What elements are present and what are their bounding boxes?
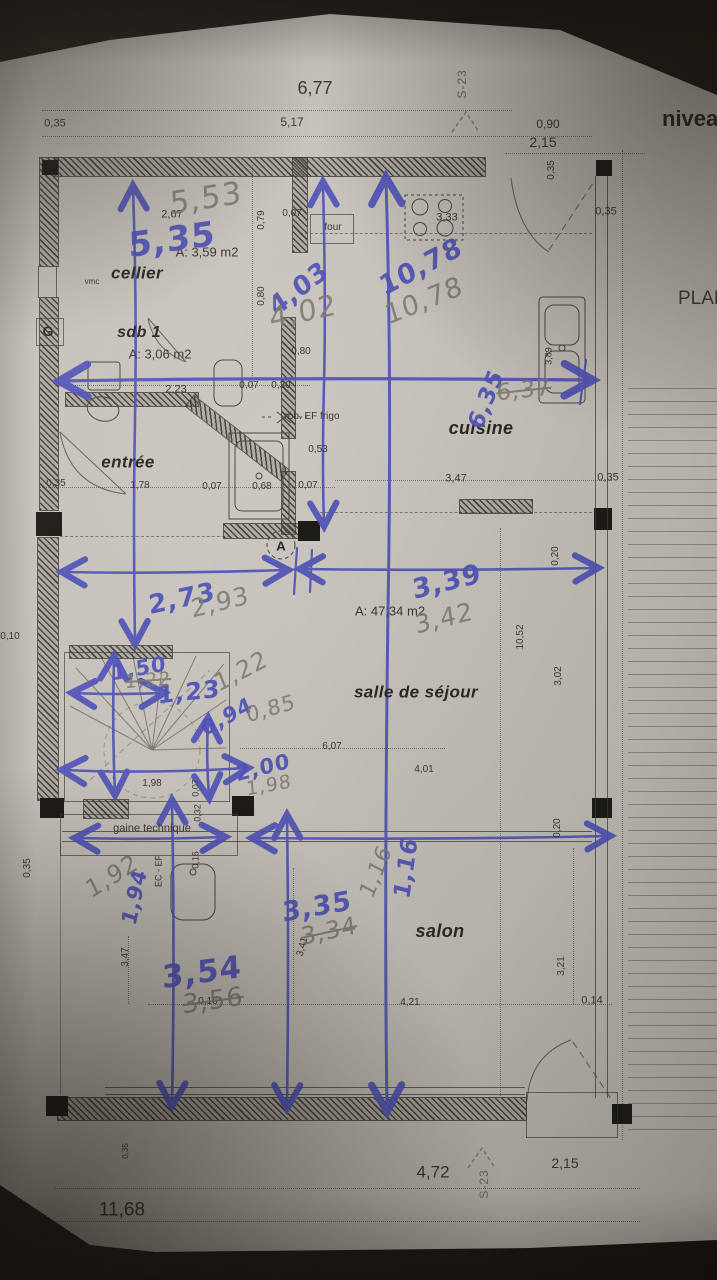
wall-top [55, 158, 485, 176]
gaine-technique-box [60, 814, 238, 856]
dim-line [252, 165, 253, 390]
printed-dimension: 0,35 [23, 858, 33, 877]
marker-label: G [43, 324, 54, 338]
printed-dimension: 3,89 [545, 347, 554, 365]
dim-line [20, 1221, 640, 1222]
printed-dimension: 0,35 [122, 1143, 130, 1159]
printed-dimension: 2,15 [529, 135, 556, 149]
post [36, 512, 62, 536]
dashed-line-kitchen [320, 512, 592, 513]
printed-dimension: 3,33 [436, 213, 457, 224]
level-title: niveau [662, 106, 717, 132]
room-label: salon [415, 922, 464, 940]
wall-bottom [58, 1098, 526, 1120]
terrace-boundary-line [622, 150, 623, 1140]
printed-dimension: 6,07 [322, 742, 341, 752]
printed-dimension: 6,77 [297, 79, 332, 97]
printed-dimension: 0,35 [46, 479, 65, 489]
room-label: salle de séjour [354, 684, 478, 701]
salon-left-line [60, 843, 61, 1095]
plan-title: PLAN [678, 288, 717, 310]
fixture-label: gaine technique [113, 824, 191, 835]
left-window-line [38, 266, 39, 298]
printed-dimension: 1,98 [142, 779, 161, 789]
dashed-line-entree [60, 536, 230, 537]
printed-dimension: 0,35 [547, 160, 557, 179]
left-window-line [56, 266, 57, 298]
dim-line [128, 936, 129, 1004]
handwritten-pencil-measurement: 1,98 [246, 772, 293, 799]
printed-dimension: 0,35 [595, 207, 616, 218]
printed-dimension: 0,14 [581, 996, 602, 1007]
printed-dimension: 0,53 [308, 445, 327, 455]
handwritten-pencil-measurement: 0,85 [245, 692, 297, 727]
wall-divider-h [224, 524, 302, 538]
bottom-window-line [105, 1094, 525, 1095]
printed-dimension: 0,68 [252, 482, 271, 492]
printed-dimension: 10,52 [516, 624, 526, 649]
printed-dimension: 2,23 [165, 385, 186, 396]
post [594, 508, 612, 530]
wall-stub-kitchen [460, 500, 532, 513]
printed-dimension: 0,07 [282, 209, 301, 219]
printed-dimension: 2,15 [551, 1156, 578, 1170]
printed-dimension: 0,07 [202, 482, 221, 492]
post [596, 160, 612, 176]
dim-line [42, 136, 592, 137]
fixture-label: vmc [85, 278, 100, 286]
dim-line [573, 848, 574, 1004]
marker-label: A [276, 540, 285, 553]
fixture-label: rob. EF frigo [284, 412, 339, 422]
section-arrow [452, 112, 495, 1168]
dim-line [240, 748, 445, 749]
printed-dimension: 0,80 [291, 347, 310, 357]
printed-dimension: 0,30 [271, 381, 290, 391]
printed-dimension: 3,47 [445, 474, 466, 485]
dim-line [500, 528, 501, 1096]
printed-dimension: 3,02 [554, 666, 564, 685]
plan-linework [0, 0, 717, 1280]
room-label: cellier [111, 265, 163, 282]
printed-dimension: 3,47 [121, 947, 131, 966]
dim-line [293, 868, 294, 1004]
printed-dimension: 0,07 [239, 381, 258, 391]
dim-line [42, 110, 512, 111]
wall-left-stairs [38, 538, 58, 800]
room-label: sdb 1 [117, 325, 161, 341]
printed-dimension: 0,35 [597, 473, 618, 484]
dim-line [505, 153, 645, 154]
printed-dimension: 0,07 [298, 481, 317, 491]
printed-dimension: 0,20 [551, 546, 561, 565]
printed-dimension: 5,17 [280, 116, 303, 128]
handwritten-pencil-measurement: 6,37 [497, 377, 552, 406]
printed-dimension: 0,32 [194, 804, 203, 822]
printed-dimension: 0,90 [536, 118, 559, 130]
printed-dimension: 1,78 [130, 481, 149, 491]
printed-dimension: 0,20 [553, 818, 563, 837]
handwritten-pencil-measurement: 1,22 [125, 670, 172, 692]
bottom-window-line [105, 1087, 525, 1088]
printed-dimension: 0,35 [44, 119, 65, 130]
printed-dimension: 0,79 [257, 210, 267, 229]
printed-dimension: 3,21 [557, 956, 567, 975]
fixture-label: four [324, 223, 341, 233]
area-label: A: 3,06 m2 [129, 348, 192, 361]
right-wall-line [595, 176, 596, 1098]
right-wall-line [607, 176, 608, 1098]
door-frame-bottom-right [526, 1092, 618, 1138]
printed-dimension: 11,68 [99, 1201, 145, 1220]
wall-kitchen-column [293, 158, 307, 252]
paper-sheet: niveau PLAN 6,770,355,170,902,152,670,79… [0, 0, 717, 1280]
room-label: entrée [101, 454, 154, 471]
dim-line [335, 480, 612, 481]
section-label: S-23 [478, 1169, 490, 1198]
fixture-label: EC - EF [155, 855, 164, 887]
dim-line [55, 1188, 640, 1189]
handwritten-pencil-measurement: 3,56 [182, 984, 244, 1019]
printed-dimension: 4,21 [400, 998, 419, 1008]
printed-dimension: 4,01 [414, 765, 433, 775]
handwritten-blue-measurement: 3,39 [411, 560, 483, 604]
terrace-decking-lines [628, 388, 717, 1136]
post [42, 160, 58, 175]
post [46, 1096, 68, 1116]
printed-dimension: 0,07 [192, 779, 201, 797]
post [298, 521, 320, 541]
printed-dimension: 0,16 [192, 851, 201, 869]
printed-dimension: 4,72 [416, 1164, 449, 1181]
floor-plan-photo: niveau PLAN 6,770,355,170,902,152,670,79… [0, 0, 717, 1280]
handwritten-pencil-measurement: 5,53 [169, 178, 243, 221]
handwritten-blue-measurement: 1,16 [392, 835, 423, 901]
section-label: S-23 [456, 69, 468, 98]
wall-diagonal [186, 396, 289, 480]
printed-dimension: 0,10 [0, 632, 19, 642]
